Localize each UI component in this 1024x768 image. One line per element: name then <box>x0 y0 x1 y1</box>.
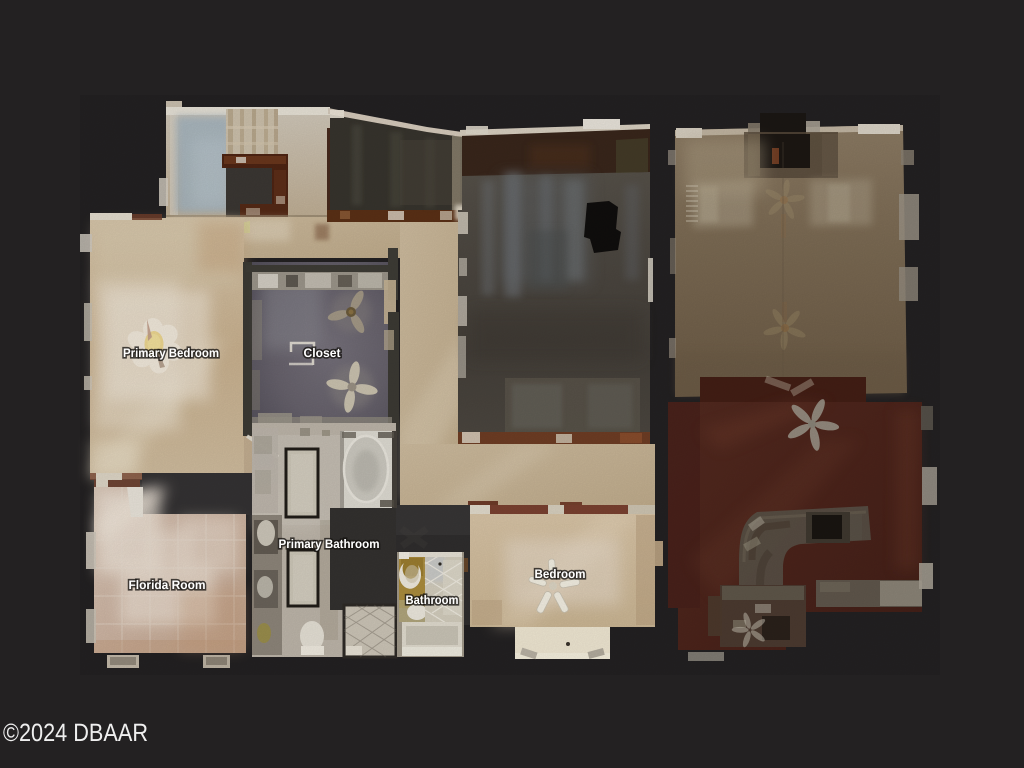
svg-text:Bedroom: Bedroom <box>535 567 586 581</box>
svg-text:©2024 DBAAR: ©2024 DBAAR <box>3 719 148 747</box>
svg-text:Primary Bedroom: Primary Bedroom <box>123 346 219 360</box>
svg-text:Bathroom: Bathroom <box>406 593 459 607</box>
svg-text:Primary Bathroom: Primary Bathroom <box>279 537 380 551</box>
svg-text:Florida Room: Florida Room <box>129 578 206 592</box>
svg-text:Closet: Closet <box>304 346 341 360</box>
